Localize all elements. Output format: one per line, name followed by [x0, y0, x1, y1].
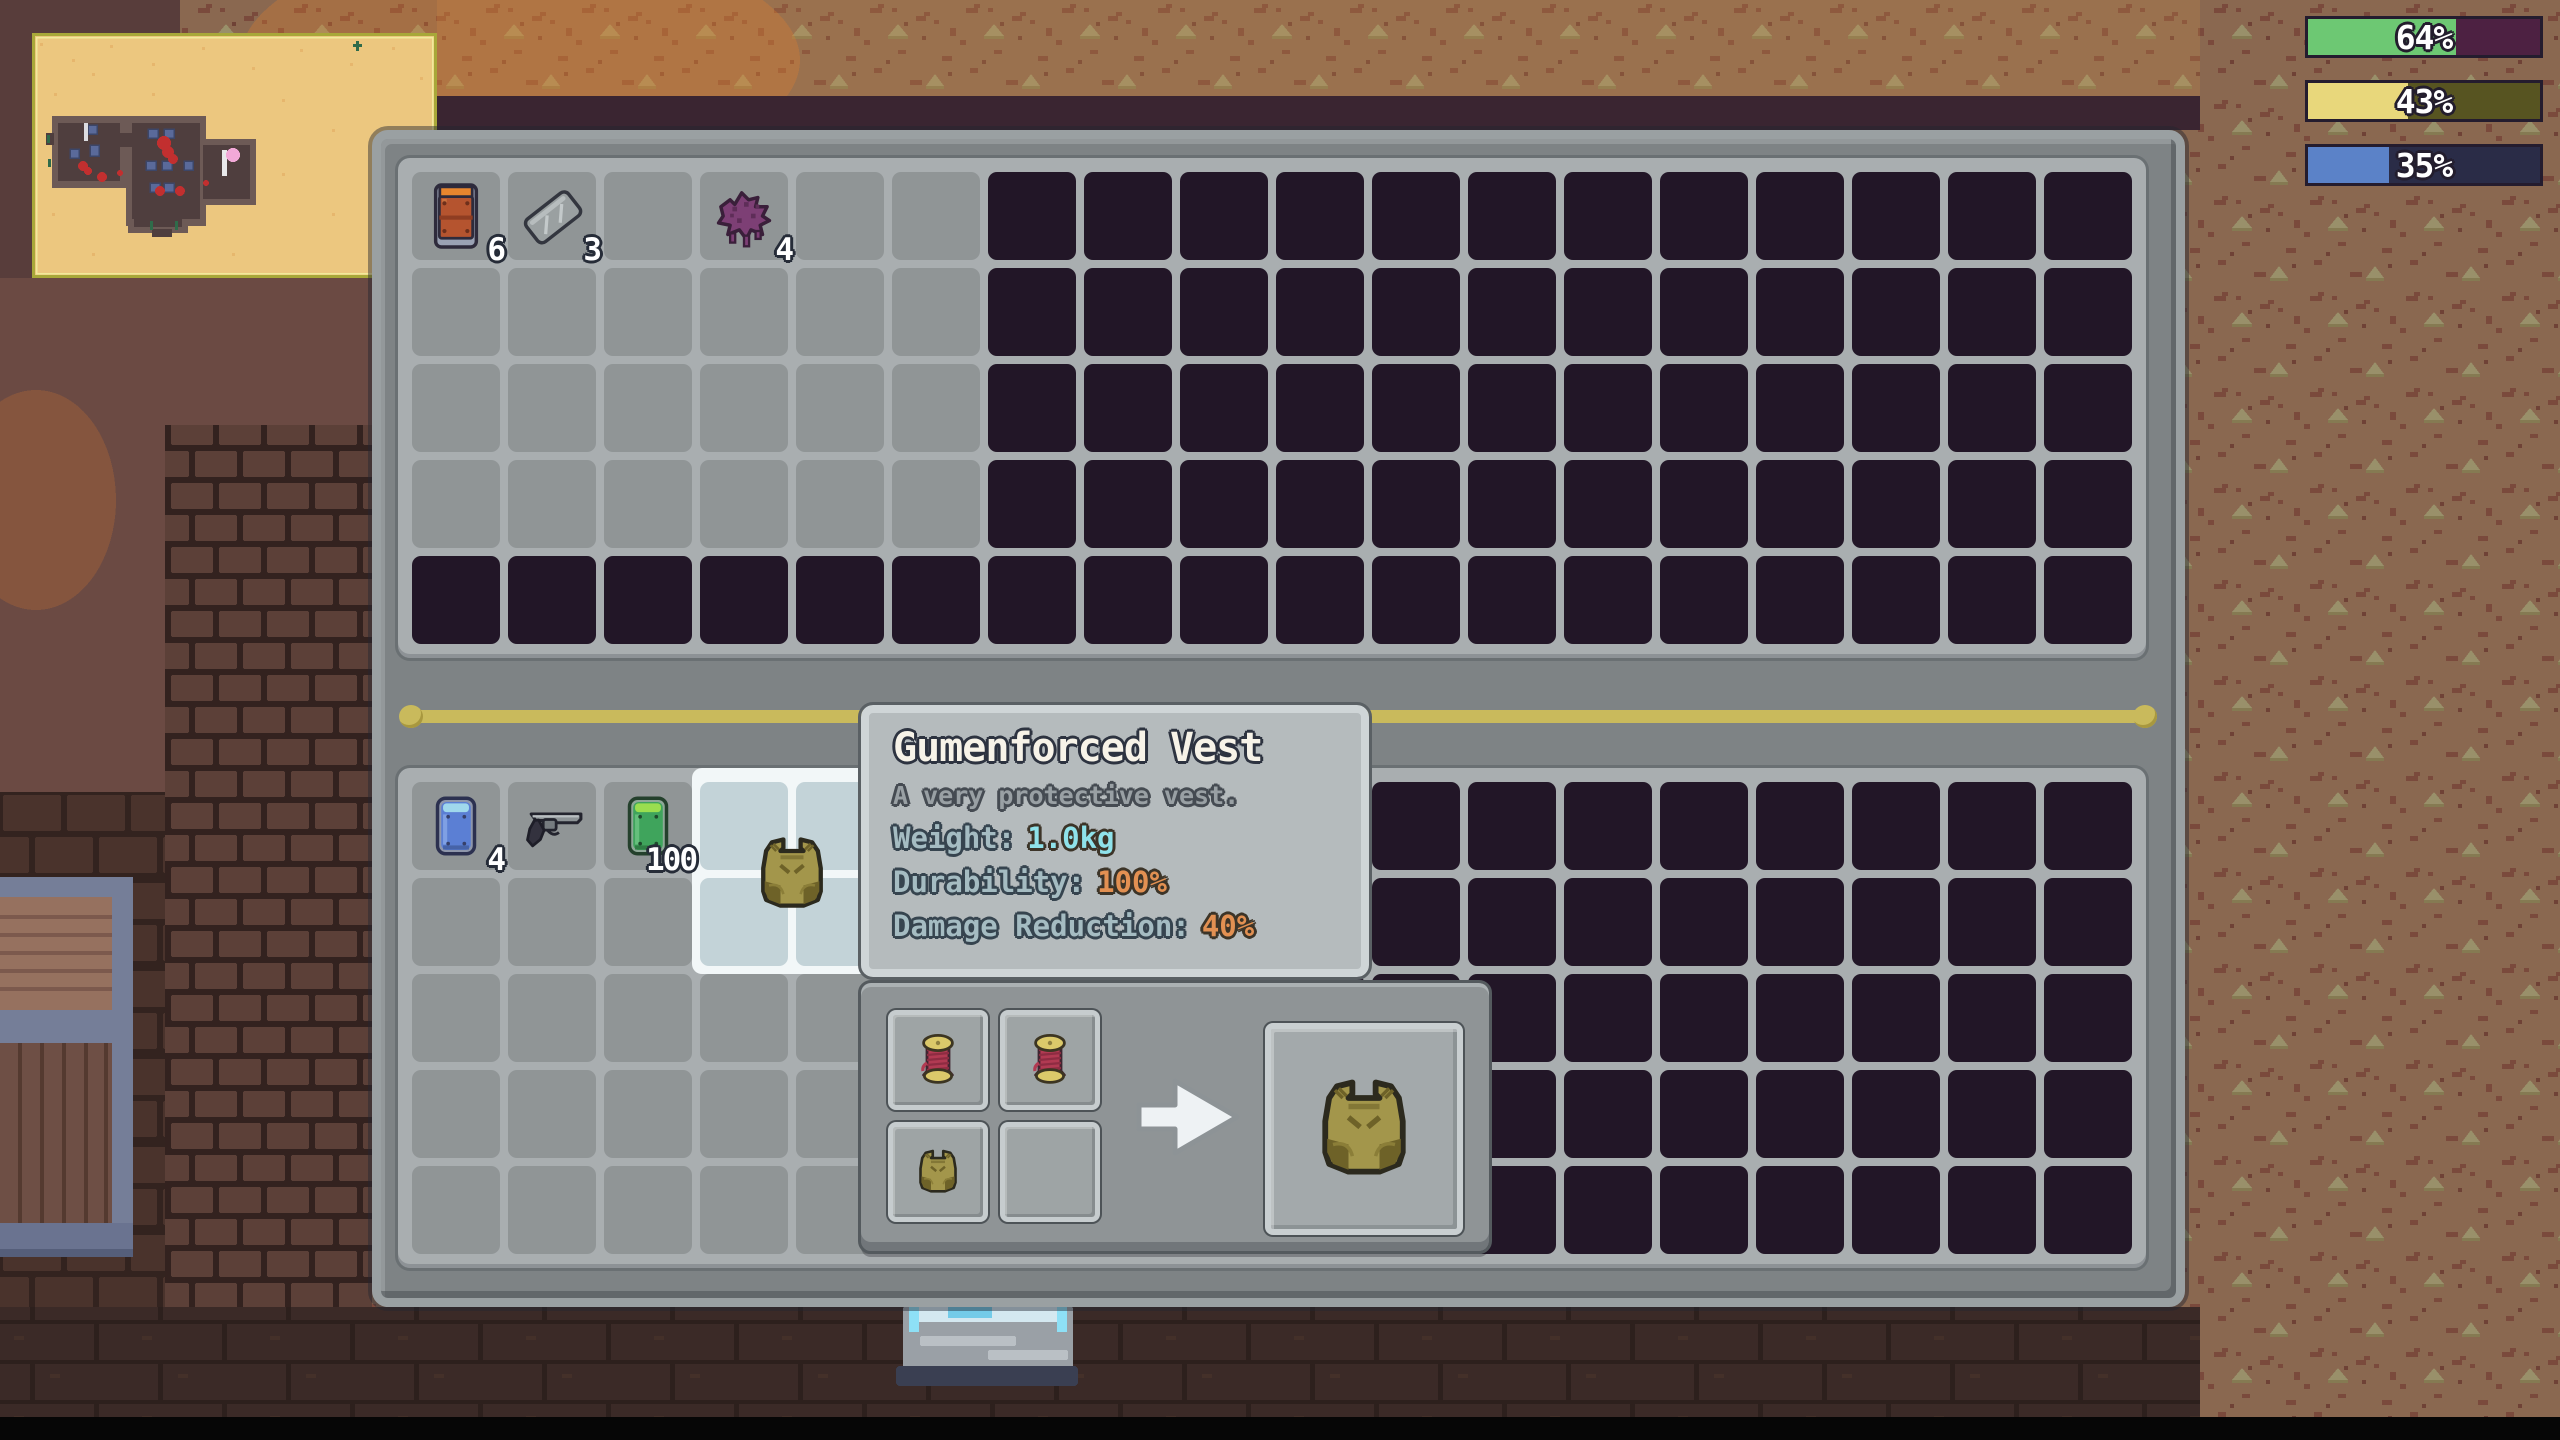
- storage-slot-r0c11: [1468, 172, 1556, 260]
- inventory-slot-r0c13: [1660, 782, 1748, 870]
- storage-slot-r0c15: [1852, 172, 1940, 260]
- storage-slot-r2c16: [1948, 364, 2036, 452]
- vest-icon: [746, 828, 838, 920]
- green-stat-bar-label: 64%: [2308, 19, 2540, 55]
- item-vest[interactable]: [700, 782, 884, 966]
- ingredient-slot-thread-spool[interactable]: [1000, 1010, 1100, 1110]
- storage-slot-r3c0[interactable]: [412, 460, 500, 548]
- inventory-slot-r4c17: [2044, 1166, 2132, 1254]
- recipe-result-slot[interactable]: [1265, 1023, 1463, 1235]
- storage-slot-r1c5[interactable]: [892, 268, 980, 356]
- inventory-slot-r2c14: [1756, 974, 1844, 1062]
- tooltip-stat-row: Damage Reduction:40%: [893, 910, 1341, 942]
- storage-slot-r4c3: [700, 556, 788, 644]
- inventory-slot-r1c0[interactable]: [412, 878, 500, 966]
- inventory-slot-r4c3[interactable]: [700, 1166, 788, 1254]
- storage-slot-r2c15: [1852, 364, 1940, 452]
- storage-slot-r2c14: [1756, 364, 1844, 452]
- item-count: 4: [775, 232, 792, 268]
- item-revolver[interactable]: [508, 782, 596, 870]
- storage-slot-r4c16: [1948, 556, 2036, 644]
- crafting-machine[interactable]: [896, 1306, 1078, 1386]
- storage-slot-r1c6: [988, 268, 1076, 356]
- vest-icon: [1302, 1067, 1426, 1191]
- storage-grid: 634: [398, 158, 2146, 658]
- inventory-slot-r3c15: [1852, 1070, 1940, 1158]
- inventory-slot-r4c2[interactable]: [604, 1166, 692, 1254]
- inventory-slot-r1c12: [1564, 878, 1652, 966]
- inventory-slot-r1c2[interactable]: [604, 878, 692, 966]
- item-count: 100: [646, 842, 696, 878]
- storage-slot-r1c12: [1564, 268, 1652, 356]
- inventory-slot-r3c13: [1660, 1070, 1748, 1158]
- storage-slot-r1c7: [1084, 268, 1172, 356]
- storage-slot-r1c3[interactable]: [700, 268, 788, 356]
- metal-sheet-icon: [515, 179, 589, 253]
- storage-slot-r4c4: [796, 556, 884, 644]
- storage-slot-r4c5: [892, 556, 980, 644]
- stat-value: 40%: [1202, 909, 1254, 943]
- item-orange-canister[interactable]: 6: [412, 172, 500, 260]
- storage-slot-r2c2[interactable]: [604, 364, 692, 452]
- inventory-slot-r3c0[interactable]: [412, 1070, 500, 1158]
- storage-slot-r0c14: [1756, 172, 1844, 260]
- inventory-slot-r3c2[interactable]: [604, 1070, 692, 1158]
- purple-goo-icon: [707, 179, 781, 253]
- thread-spool-icon: [1018, 1028, 1082, 1092]
- inventory-slot-r2c1[interactable]: [508, 974, 596, 1062]
- inventory-slot-r4c0[interactable]: [412, 1166, 500, 1254]
- inventory-slot-r2c12: [1564, 974, 1652, 1062]
- item-count: 3: [583, 232, 600, 268]
- storage-slot-r1c16: [1948, 268, 2036, 356]
- storage-slot-r1c13: [1660, 268, 1748, 356]
- storage-slot-r4c10: [1372, 556, 1460, 644]
- inventory-slot-r1c17: [2044, 878, 2132, 966]
- storage-slot-r1c8: [1180, 268, 1268, 356]
- storage-slot-r0c17: [2044, 172, 2132, 260]
- storage-slot-r3c12: [1564, 460, 1652, 548]
- storage-slot-r2c7: [1084, 364, 1172, 452]
- storage-slot-r3c11: [1468, 460, 1556, 548]
- stat-label: Durability:: [893, 865, 1085, 899]
- storage-slot-r0c9: [1276, 172, 1364, 260]
- storage-slot-r0c16: [1948, 172, 2036, 260]
- storage-slot-r2c9: [1276, 364, 1364, 452]
- storage-slot-r1c4[interactable]: [796, 268, 884, 356]
- inventory-slot-r1c10: [1372, 878, 1460, 966]
- storage-slot-r3c17: [2044, 460, 2132, 548]
- item-purple-goo[interactable]: 4: [700, 172, 788, 260]
- storage-slot-r2c11: [1468, 364, 1556, 452]
- item-metal-sheet[interactable]: 3: [508, 172, 596, 260]
- window: [0, 877, 133, 1257]
- thread-spool-icon: [906, 1028, 970, 1092]
- storage-slot-r3c15: [1852, 460, 1940, 548]
- inventory-slot-r0c11: [1468, 782, 1556, 870]
- stat-label: Weight:: [893, 821, 1015, 855]
- storage-slot-r3c5[interactable]: [892, 460, 980, 548]
- inventory-slot-r0c14: [1756, 782, 1844, 870]
- tooltip-stats: Weight:1.0kgDurability:100%Damage Reduct…: [893, 822, 1341, 942]
- vest-icon: [910, 1144, 966, 1200]
- inventory-slot-r3c12: [1564, 1070, 1652, 1158]
- tooltip-item-title: Gumenforced Vest: [893, 725, 1341, 771]
- storage-slot-r2c10: [1372, 364, 1460, 452]
- storage-slot-r4c14: [1756, 556, 1844, 644]
- inventory-slot-r2c3[interactable]: [700, 974, 788, 1062]
- storage-slot-r2c3[interactable]: [700, 364, 788, 452]
- inventory-slot-r2c2[interactable]: [604, 974, 692, 1062]
- inventory-slot-r4c12: [1564, 1166, 1652, 1254]
- storage-slot-r2c4[interactable]: [796, 364, 884, 452]
- storage-slot-r3c13: [1660, 460, 1748, 548]
- storage-slot-r3c2[interactable]: [604, 460, 692, 548]
- item-count: 4: [487, 842, 504, 878]
- inventory-slot-r0c15: [1852, 782, 1940, 870]
- ingredient-slot-thread-spool[interactable]: [888, 1010, 988, 1110]
- crafting-recipe-popup: [861, 983, 1489, 1251]
- storage-slot-r4c9: [1276, 556, 1364, 644]
- storage-slot-r2c0[interactable]: [412, 364, 500, 452]
- storage-slot-r4c11: [1468, 556, 1556, 644]
- inventory-slot-r1c16: [1948, 878, 2036, 966]
- storage-slot-r4c17: [2044, 556, 2132, 644]
- inventory-slot-r3c14: [1756, 1070, 1844, 1158]
- storage-slot-r4c2: [604, 556, 692, 644]
- storage-slot-r3c7: [1084, 460, 1172, 548]
- inventory-slot-r0c16: [1948, 782, 2036, 870]
- inventory-slot-r1c14: [1756, 878, 1844, 966]
- inventory-slot-r3c1[interactable]: [508, 1070, 596, 1158]
- storage-slot-r1c14: [1756, 268, 1844, 356]
- item-blue-can[interactable]: 4: [412, 782, 500, 870]
- item-count: 6: [487, 232, 504, 268]
- storage-slot-r1c9: [1276, 268, 1364, 356]
- storage-slot-r1c15: [1852, 268, 1940, 356]
- storage-slot-r1c11: [1468, 268, 1556, 356]
- storage-slot-r3c4[interactable]: [796, 460, 884, 548]
- ingredient-slot-empty[interactable]: [1000, 1122, 1100, 1222]
- storage-slot-r0c13: [1660, 172, 1748, 260]
- storage-slot-r4c1: [508, 556, 596, 644]
- orange-canister-icon: [419, 179, 493, 253]
- inventory-slot-r2c0[interactable]: [412, 974, 500, 1062]
- item-tooltip: Gumenforced Vest A very protective vest.…: [861, 705, 1369, 977]
- storage-slot-r3c6: [988, 460, 1076, 548]
- blue-can-icon: [419, 789, 493, 863]
- storage-slot-r1c2[interactable]: [604, 268, 692, 356]
- storage-slot-r2c1[interactable]: [508, 364, 596, 452]
- inventory-slot-r0c10: [1372, 782, 1460, 870]
- storage-slot-r0c12: [1564, 172, 1652, 260]
- yellow-stat-bar: 43%: [2305, 80, 2543, 122]
- storage-slot-r4c6: [988, 556, 1076, 644]
- storage-slot-r2c6: [988, 364, 1076, 452]
- storage-slot-r3c1[interactable]: [508, 460, 596, 548]
- inventory-slot-r4c14: [1756, 1166, 1844, 1254]
- inventory-slot-r1c11: [1468, 878, 1556, 966]
- inventory-slot-r4c15: [1852, 1166, 1940, 1254]
- green-stat-bar: 64%: [2305, 16, 2543, 58]
- storage-slot-r2c13: [1660, 364, 1748, 452]
- inventory-slot-r1c1[interactable]: [508, 878, 596, 966]
- storage-slot-r0c2[interactable]: [604, 172, 692, 260]
- storage-slot-r4c8: [1180, 556, 1268, 644]
- game-screen: 634 4100 Gumenforced Vest A very protect…: [0, 0, 2560, 1440]
- storage-slot-r0c7: [1084, 172, 1172, 260]
- storage-slot-r0c4[interactable]: [796, 172, 884, 260]
- storage-slot-r4c12: [1564, 556, 1652, 644]
- inventory-slot-r2c17: [2044, 974, 2132, 1062]
- storage-slot-r3c8: [1180, 460, 1268, 548]
- yellow-stat-bar-label: 43%: [2308, 83, 2540, 119]
- inventory-slot-r3c16: [1948, 1070, 2036, 1158]
- inventory-slot-r2c13: [1660, 974, 1748, 1062]
- inventory-slot-r2c16: [1948, 974, 2036, 1062]
- inventory-slot-r4c13: [1660, 1166, 1748, 1254]
- item-green-can[interactable]: 100: [604, 782, 692, 870]
- inventory-slot-r4c16: [1948, 1166, 2036, 1254]
- storage-slot-r4c0: [412, 556, 500, 644]
- storage-slot-r1c0[interactable]: [412, 268, 500, 356]
- storage-slot-r3c3[interactable]: [700, 460, 788, 548]
- storage-slot-r3c9: [1276, 460, 1364, 548]
- status-bars: 64%43%35%: [2305, 16, 2543, 208]
- inventory-slot-r1c13: [1660, 878, 1748, 966]
- stat-value: 1.0kg: [1027, 821, 1114, 855]
- storage-slot-r4c7: [1084, 556, 1172, 644]
- inventory-slot-r3c17: [2044, 1070, 2132, 1158]
- tooltip-item-description: A very protective vest.: [893, 781, 1341, 810]
- tooltip-stat-row: Weight:1.0kg: [893, 822, 1341, 854]
- storage-slot-r0c6: [988, 172, 1076, 260]
- storage-slot-r2c17: [2044, 364, 2132, 452]
- storage-slot-r3c14: [1756, 460, 1844, 548]
- storage-slot-r1c10: [1372, 268, 1460, 356]
- inventory-slot-r0c12: [1564, 782, 1652, 870]
- storage-slot-r0c8: [1180, 172, 1268, 260]
- storage-slot-r0c5[interactable]: [892, 172, 980, 260]
- blue-stat-bar: 35%: [2305, 144, 2543, 186]
- storage-slot-r2c5[interactable]: [892, 364, 980, 452]
- storage-slot-r2c8: [1180, 364, 1268, 452]
- inventory-slot-r1c15: [1852, 878, 1940, 966]
- inventory-slot-r2c15: [1852, 974, 1940, 1062]
- inventory-slot-r3c3[interactable]: [700, 1070, 788, 1158]
- stat-value: 100%: [1097, 865, 1167, 899]
- recipe-arrow-icon: [1133, 1055, 1253, 1179]
- inventory-slot-r0c17: [2044, 782, 2132, 870]
- storage-slot-r0c10: [1372, 172, 1460, 260]
- storage-slot-r3c16: [1948, 460, 2036, 548]
- blue-stat-bar-label: 35%: [2308, 147, 2540, 183]
- storage-slot-r1c1[interactable]: [508, 268, 596, 356]
- ingredient-slot-vest[interactable]: [888, 1122, 988, 1222]
- stat-label: Damage Reduction:: [893, 909, 1190, 943]
- storage-slot-r2c12: [1564, 364, 1652, 452]
- revolver-icon: [515, 789, 589, 863]
- storage-slot-r1c17: [2044, 268, 2132, 356]
- inventory-slot-r4c1[interactable]: [508, 1166, 596, 1254]
- storage-slot-r4c13: [1660, 556, 1748, 644]
- storage-slot-r4c15: [1852, 556, 1940, 644]
- storage-slot-r3c10: [1372, 460, 1460, 548]
- tooltip-stat-row: Durability:100%: [893, 866, 1341, 898]
